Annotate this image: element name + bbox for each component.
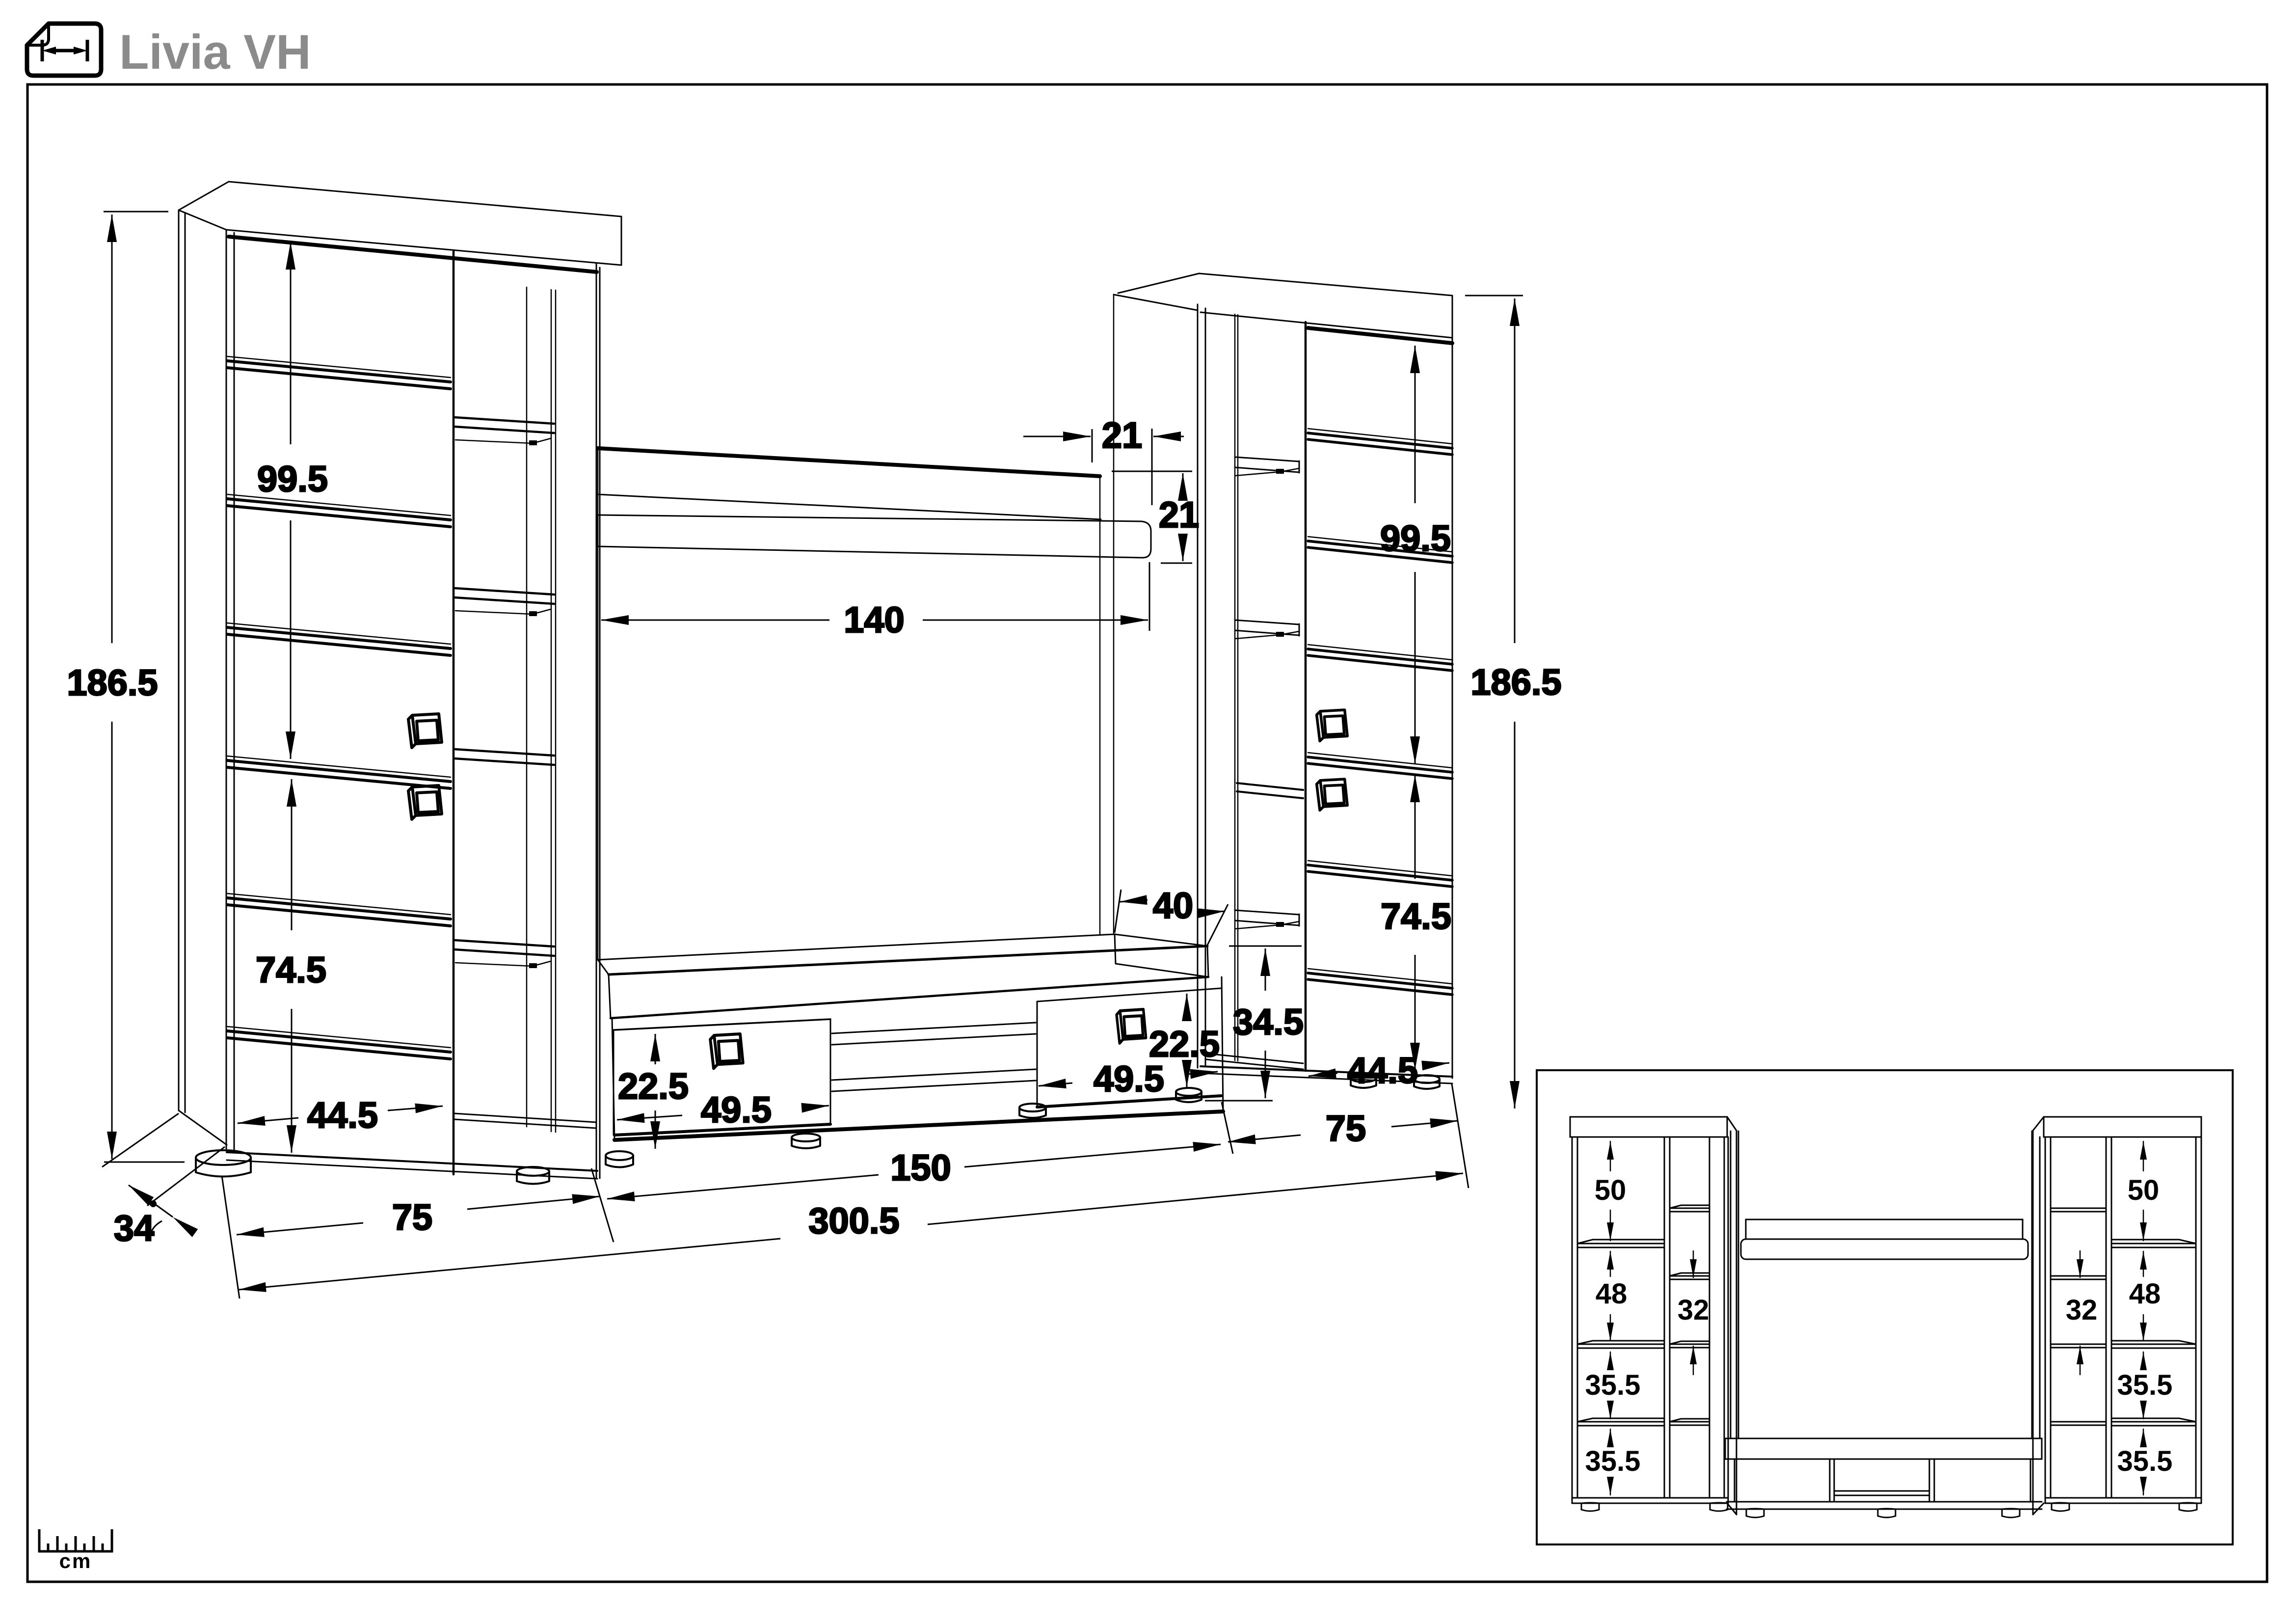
svg-text:99.5: 99.5: [257, 459, 328, 499]
svg-text:75: 75: [1326, 1108, 1366, 1149]
svg-text:300.5: 300.5: [808, 1200, 899, 1241]
svg-text:35.5: 35.5: [2117, 1445, 2173, 1477]
svg-text:Livia VH: Livia VH: [119, 25, 311, 79]
svg-text:34: 34: [114, 1208, 154, 1248]
svg-text:44.5: 44.5: [1347, 1050, 1418, 1091]
svg-text:48: 48: [1596, 1278, 1628, 1310]
svg-text:49.5: 49.5: [701, 1089, 772, 1130]
svg-text:50: 50: [1595, 1174, 1627, 1206]
svg-text:22.5: 22.5: [618, 1066, 689, 1107]
svg-text:21: 21: [1159, 494, 1199, 535]
svg-text:35.5: 35.5: [1585, 1369, 1641, 1401]
svg-text:140: 140: [844, 599, 904, 640]
svg-text:50: 50: [2128, 1174, 2160, 1206]
svg-text:32: 32: [2066, 1294, 2098, 1326]
svg-text:99.5: 99.5: [1380, 518, 1451, 559]
svg-text:35.5: 35.5: [2117, 1369, 2173, 1401]
svg-text:48: 48: [2129, 1278, 2161, 1310]
svg-text:21: 21: [1102, 415, 1142, 456]
svg-text:150: 150: [890, 1147, 951, 1188]
svg-text:44.5: 44.5: [307, 1095, 378, 1136]
svg-text:49.5: 49.5: [1094, 1058, 1164, 1099]
svg-text:40: 40: [1153, 885, 1193, 926]
svg-text:74.5: 74.5: [1381, 896, 1451, 937]
svg-text:35.5: 35.5: [1585, 1445, 1641, 1477]
svg-text:34.5: 34.5: [1233, 1001, 1304, 1042]
svg-text:186.5: 186.5: [1470, 662, 1561, 703]
svg-text:32: 32: [1678, 1294, 1709, 1326]
svg-text:75: 75: [392, 1197, 432, 1238]
svg-text:186.5: 186.5: [67, 662, 158, 703]
svg-text:74.5: 74.5: [256, 949, 326, 990]
svg-text:cm: cm: [59, 1549, 92, 1572]
